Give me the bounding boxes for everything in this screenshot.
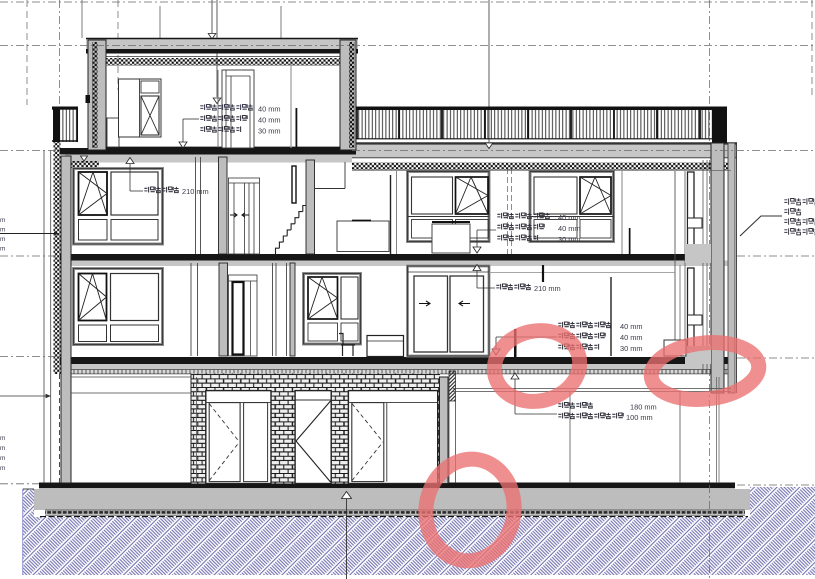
svg-text:100 mm: 100 mm: [626, 413, 653, 422]
svg-text:180 mm: 180 mm: [630, 403, 657, 412]
svg-text:m: m: [0, 236, 5, 243]
svg-text:40 mm: 40 mm: [258, 116, 281, 125]
svg-text:30 mm: 30 mm: [558, 235, 581, 244]
svg-text:m: m: [0, 445, 5, 452]
svg-text:m: m: [0, 227, 5, 234]
svg-text:m: m: [0, 455, 5, 462]
svg-text:30 mm: 30 mm: [620, 344, 643, 353]
svg-text:m: m: [0, 435, 5, 442]
svg-text:40 mm: 40 mm: [558, 224, 581, 233]
svg-text:40 mm: 40 mm: [620, 333, 643, 342]
svg-text:40 mm: 40 mm: [558, 213, 581, 222]
svg-text:m: m: [0, 465, 5, 472]
svg-text:40 mm: 40 mm: [258, 105, 281, 114]
svg-text:m: m: [0, 246, 5, 253]
svg-text:210 mm: 210 mm: [182, 187, 209, 196]
svg-text:40 mm: 40 mm: [620, 322, 643, 331]
svg-text:30 mm: 30 mm: [258, 127, 281, 136]
svg-text:m: m: [0, 217, 5, 224]
svg-text:210 mm: 210 mm: [534, 284, 561, 293]
